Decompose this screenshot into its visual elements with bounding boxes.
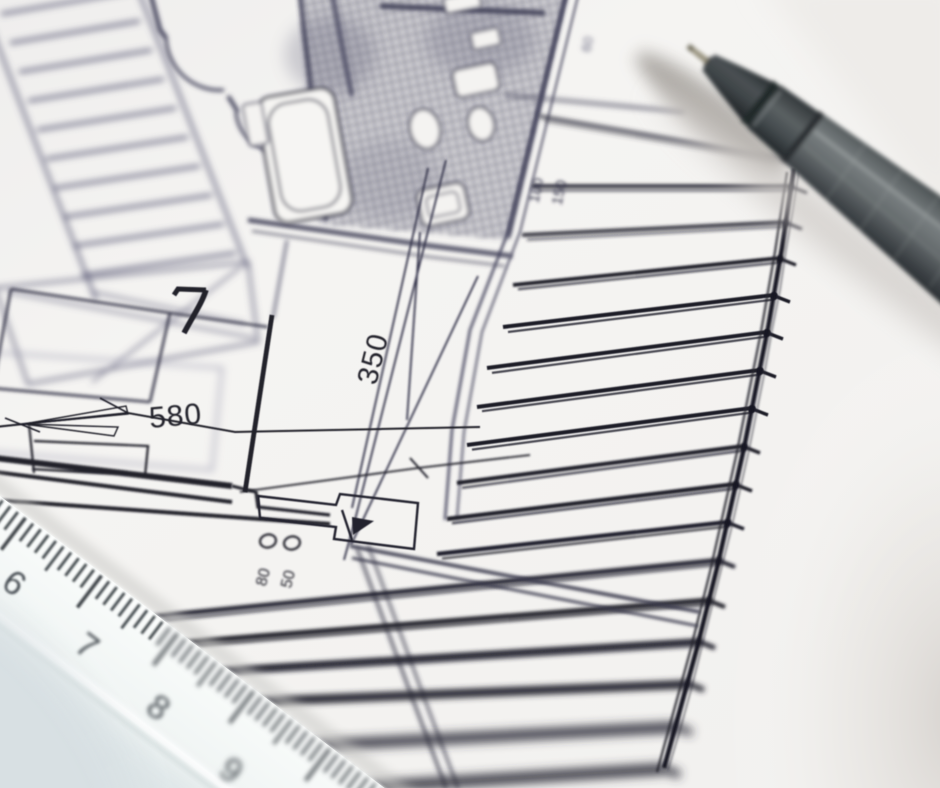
svg-text:580: 580 [148,397,204,434]
